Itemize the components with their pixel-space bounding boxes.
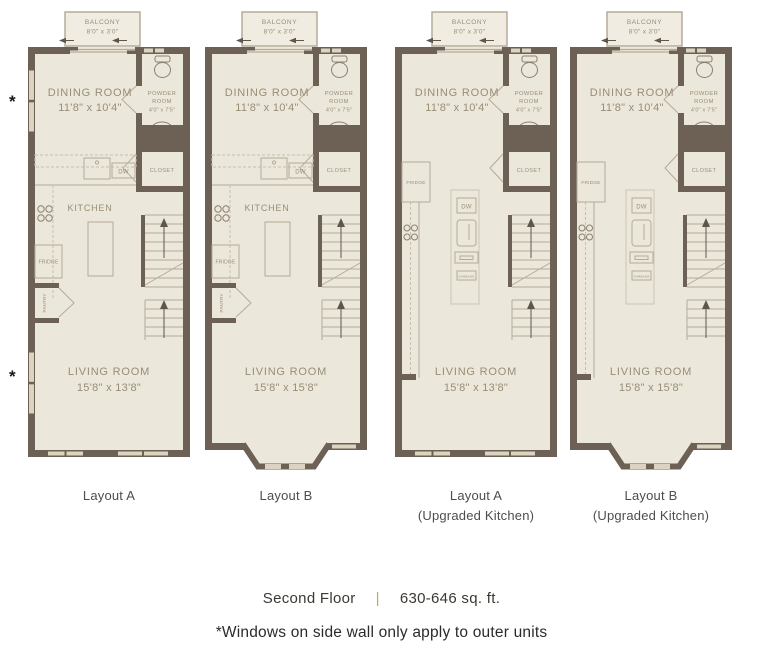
window-top-right [144, 48, 164, 53]
dining-room-dims: 11'8" x 10'4" [58, 102, 121, 114]
svg-text:ROOM: ROOM [519, 99, 539, 105]
plan-caption-layout-b: Layout B [205, 486, 367, 506]
balcony: BALCONY8'0" x 3'0" [601, 12, 682, 46]
side-window-asterisk-top: * [9, 92, 16, 112]
window-side-wall-2 [29, 350, 34, 416]
plan-caption-layout-a-upgraded: Layout A(Upgraded Kitchen) [395, 486, 557, 526]
area-label: 630-646 sq. ft. [400, 590, 500, 607]
side-window-footnote: *Windows on side wall only apply to oute… [0, 624, 763, 642]
plan-caption-layout-b-upgraded: Layout B(Upgraded Kitchen) [570, 486, 732, 526]
floor-plan-layout-b: BALCONY8'0" x 3'0"POWDERROOM4'0" x 7'5"C… [205, 0, 367, 478]
living-room-label: LIVING ROOM [245, 366, 327, 378]
powder-room-dims: 4'0" x 7'5" [691, 108, 717, 114]
pantry-label: PANTRY [219, 293, 224, 312]
wall-chase-block [313, 125, 367, 152]
wall-chase-block [678, 125, 732, 152]
floor-plan-layout-a-upgraded: BALCONY8'0" x 3'0"POWDERROOM4'0" x 7'5"C… [395, 0, 557, 478]
window-side-wall-1 [29, 68, 34, 134]
living-room-label: LIVING ROOM [68, 366, 150, 378]
powder-room-dims: 4'0" x 7'5" [326, 108, 352, 114]
dining-room-label: DINING ROOM [415, 87, 500, 99]
balcony-label: BALCONY [85, 19, 120, 26]
living-room-label: LIVING ROOM [435, 366, 517, 378]
window-top-right [686, 48, 706, 53]
dishwasher-label: DW [461, 205, 472, 211]
powder-room-label: POWDER [690, 91, 719, 97]
closet-label: CLOSET [327, 168, 352, 174]
balcony-door [70, 47, 135, 54]
balcony-label: BALCONY [452, 19, 487, 26]
balcony-dims: 8'0" x 3'0" [454, 29, 486, 36]
fridge-label: FRIDGE [406, 180, 425, 186]
balcony-dims: 8'0" x 3'0" [629, 29, 661, 36]
bottom-wall [395, 450, 557, 457]
bottom-wall [28, 450, 190, 457]
dining-room-label: DINING ROOM [225, 87, 310, 99]
floor-plan-column-layout-a: BALCONY8'0" x 3'0"POWDERROOM4'0" x 7'5"C… [28, 0, 190, 478]
powder-room-dims: 4'0" x 7'5" [149, 108, 175, 114]
powder-room-label: POWDER [325, 91, 354, 97]
living-room-dims: 15'8" x 15'8" [254, 382, 318, 394]
svg-text:ROOM: ROOM [152, 99, 172, 105]
floor-plan-sheet: BALCONY8'0" x 3'0"POWDERROOM4'0" x 7'5"C… [0, 0, 763, 661]
powder-room-label: POWDER [515, 91, 544, 97]
plan-caption-layout-a: Layout A [28, 486, 190, 506]
living-room-dims: 15'8" x 15'8" [619, 382, 683, 394]
dining-room-label: DINING ROOM [590, 87, 675, 99]
fridge-label: FRIDGE [38, 260, 59, 266]
balcony: BALCONY8'0" x 3'0" [426, 12, 507, 46]
living-room-dims: 15'8" x 13'8" [77, 382, 141, 394]
floor-plan-column-layout-b-upgraded: BALCONY8'0" x 3'0"POWDERROOM4'0" x 7'5"C… [570, 0, 732, 478]
balcony-door [437, 47, 502, 54]
closet-label: CLOSET [517, 168, 542, 174]
kitchen-label: KITCHEN [67, 203, 112, 213]
garbage-label: GARBAGE [458, 275, 474, 279]
dishwasher-label: DW [118, 170, 129, 176]
pantry-label: PANTRY [42, 293, 47, 312]
window-top-right [321, 48, 341, 53]
balcony-dims: 8'0" x 3'0" [264, 29, 296, 36]
floor-plan-layout-b-upgraded: BALCONY8'0" x 3'0"POWDERROOM4'0" x 7'5"C… [570, 0, 732, 478]
dining-room-label: DINING ROOM [48, 87, 133, 99]
side-window-asterisk-bottom: * [9, 367, 16, 387]
balcony-door [247, 47, 312, 54]
dining-room-dims: 11'8" x 10'4" [235, 102, 298, 114]
balcony-label: BALCONY [262, 19, 297, 26]
garbage-label: GARBAGE [633, 275, 649, 279]
floor-summary: Second Floor|630-646 sq. ft. [0, 590, 763, 607]
kitchen-label: KITCHEN [244, 203, 289, 213]
balcony-dims: 8'0" x 3'0" [87, 29, 119, 36]
svg-text:ROOM: ROOM [329, 99, 349, 105]
floor-plan-layout-a: BALCONY8'0" x 3'0"POWDERROOM4'0" x 7'5"C… [28, 0, 190, 478]
balcony: BALCONY8'0" x 3'0" [236, 12, 317, 46]
living-room-dims: 15'8" x 13'8" [444, 382, 508, 394]
living-room-label: LIVING ROOM [610, 366, 692, 378]
wall-chase-block [136, 125, 190, 152]
closet-label: CLOSET [692, 168, 717, 174]
svg-text:ROOM: ROOM [694, 99, 714, 105]
fridge-label: FRIDGE [581, 180, 600, 186]
floor-plan-column-layout-b: BALCONY8'0" x 3'0"POWDERROOM4'0" x 7'5"C… [205, 0, 367, 478]
floor-label: Second Floor [263, 590, 356, 607]
fridge-label: FRIDGE [215, 260, 236, 266]
balcony: BALCONY8'0" x 3'0" [59, 12, 140, 46]
balcony-door [612, 47, 677, 54]
gold-separator: | [376, 590, 380, 607]
powder-room-dims: 4'0" x 7'5" [516, 108, 542, 114]
window-top-right [511, 48, 531, 53]
balcony-label: BALCONY [627, 19, 662, 26]
floor-plan-column-layout-a-upgraded: BALCONY8'0" x 3'0"POWDERROOM4'0" x 7'5"C… [395, 0, 557, 478]
closet-label: CLOSET [150, 168, 175, 174]
dining-room-dims: 11'8" x 10'4" [425, 102, 488, 114]
dishwasher-label: DW [636, 205, 647, 211]
dishwasher-label: DW [295, 170, 306, 176]
dining-room-dims: 11'8" x 10'4" [600, 102, 663, 114]
powder-room-label: POWDER [148, 91, 177, 97]
wall-chase-block [503, 125, 557, 152]
